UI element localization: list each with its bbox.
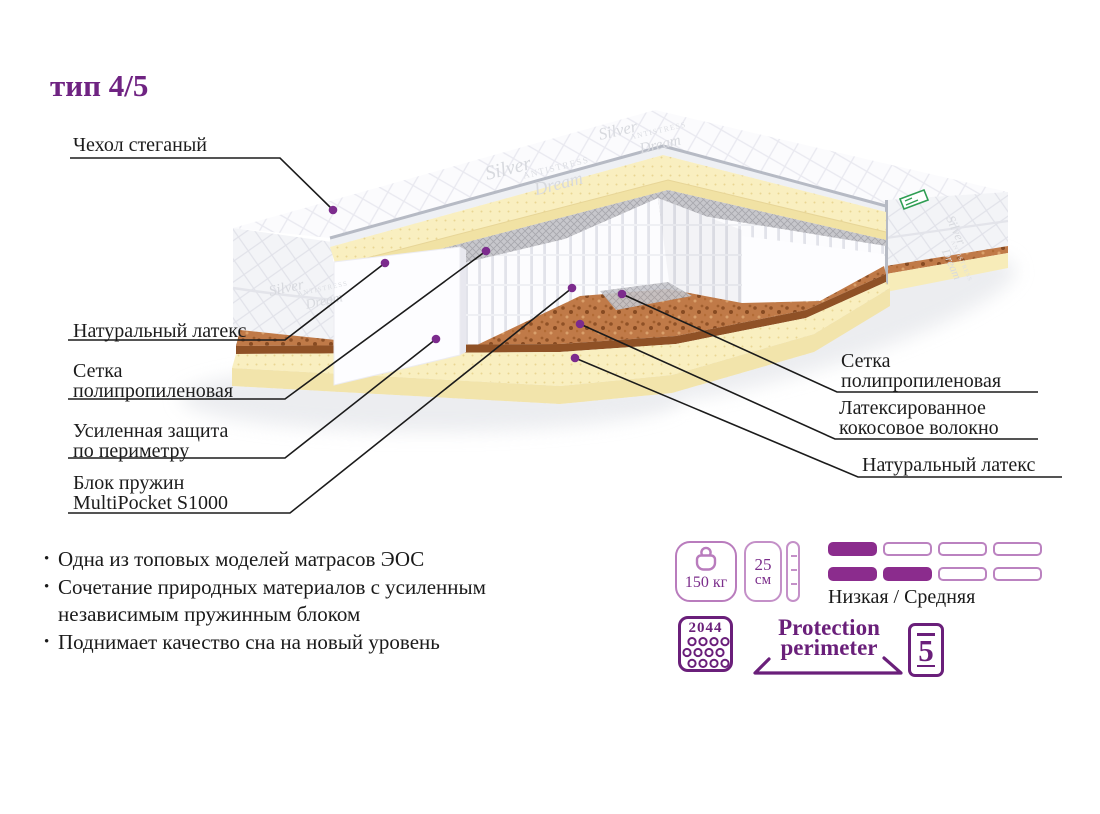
warranty-bottom-bar [917,665,935,668]
firmness-pill [993,542,1042,556]
label-latex-left: Натуральный латекс [73,322,246,342]
label-latex-right: Натуральный латекс [862,456,1035,476]
springs-count-badge: 2044 [678,616,733,672]
infographic-canvas: Silver ANTISTRESS Dream Silver ANTISTRES… [0,0,1100,814]
list-item: • Одна из топовых моделей матрасов ЭОС [44,546,584,574]
max-weight-value: 150 кг [685,574,727,592]
protection-perimeter-badge: Protection perimeter [744,618,914,657]
ruler-icon [786,541,800,602]
firmness-pill [883,542,932,556]
firmness-label: Низкая / Средняя [828,586,975,609]
max-weight-badge: 150 кг [675,541,737,602]
firmness-pill [993,567,1042,581]
list-item: • Поднимает качество сна на новый уровен… [44,629,584,657]
firmness-pill [938,542,987,556]
page-title: тип 4/5 [50,68,148,104]
protection-trapezoid-icon [744,651,914,677]
warranty-value: 5 [918,636,934,665]
height-badge: 25 см [744,541,782,602]
bullet-icon: • [44,574,58,629]
kettlebell-icon [691,546,721,573]
list-item: • Сочетание природных материалов с усиле… [44,574,584,629]
height-unit: см [755,573,771,588]
warranty-badge: 5 [908,623,944,677]
springs-count-value: 2044 [689,620,723,637]
label-springs: Блок пружин MultiPocket S1000 [73,474,228,513]
firmness-pill [883,567,932,581]
label-mesh-left: Сетка полипропиленовая [73,362,233,401]
label-coir-right: Латексированное кокосовое волокно [839,399,999,438]
label-mesh-right: Сетка полипропиленовая [841,352,1001,391]
firmness-pill [828,542,877,556]
bullet-icon: • [44,546,58,574]
height-value: 25 [755,556,772,573]
firmness-pill [828,567,877,581]
firmness-pill [938,567,987,581]
feature-list: • Одна из топовых моделей матрасов ЭОС •… [44,546,584,656]
label-cover: Чехол стеганый [73,136,207,156]
label-perimeter: Усиленная защита по периметру [73,422,228,461]
springs-grid-icon [682,637,730,668]
bullet-icon: • [44,629,58,657]
